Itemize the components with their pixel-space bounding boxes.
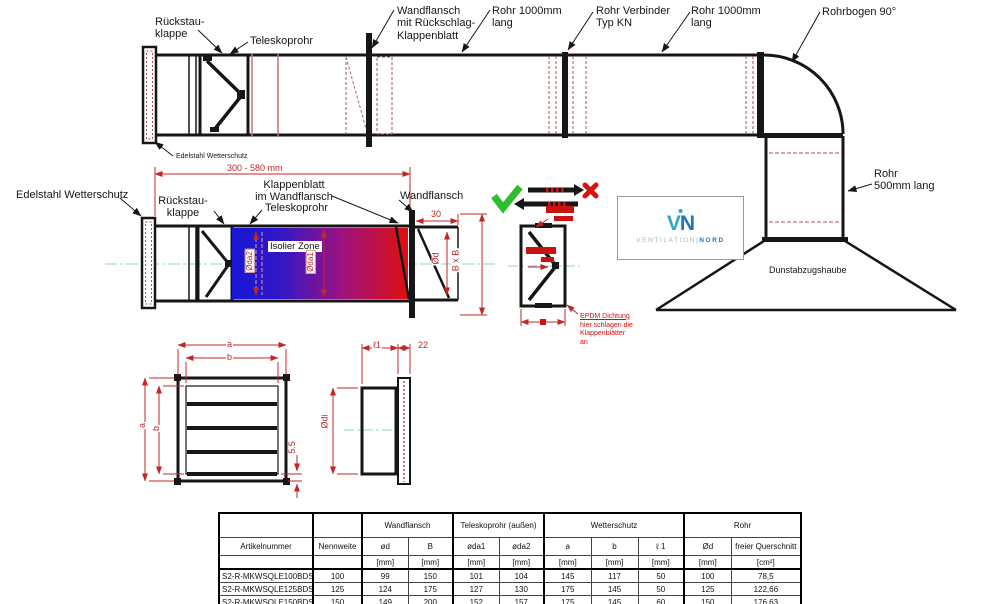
label-teleskoprohr-section: Teleskoprohr — [265, 202, 328, 214]
table-header: Nennweite — [313, 538, 362, 556]
table-cell: [cm²] — [731, 556, 801, 570]
table-cell: 145 — [591, 583, 638, 596]
label-wandflansch-section: Wandflansch — [400, 190, 463, 202]
table-cell: 175 — [408, 583, 453, 596]
dim-30: 30 — [430, 210, 442, 219]
logo-letter-n: N — [680, 212, 694, 235]
table-cell: 101 — [453, 569, 499, 583]
table-cell: [mm] — [638, 556, 684, 570]
table-group-rohr: Rohr — [684, 513, 801, 538]
table-cell: 100 — [313, 569, 362, 583]
table-header: øda1 — [453, 538, 499, 556]
table-cell: 200 — [408, 596, 453, 604]
dim-bxb: B x B — [451, 249, 460, 273]
table-cell: 117 — [591, 569, 638, 583]
spec-table: Wandflansch Teleskoprohr (außen) Wetters… — [218, 512, 802, 604]
logo-vn-monogram: VN — [667, 213, 694, 234]
ventilation-nord-logo: VN VENTILATION|NORD — [617, 196, 744, 260]
logo-wordmark: VENTILATION|NORD — [636, 237, 725, 244]
table-group-teleskoprohr: Teleskoprohr (außen) — [453, 513, 544, 538]
table-cell: 100 — [684, 569, 731, 583]
blocked-cross-icon — [585, 185, 596, 196]
table-header: Artikelnummer — [219, 538, 313, 556]
note-epdm-body: hier schlagen die Klappenblätter an — [580, 322, 633, 347]
label-rohr500: Rohr 500mm lang — [874, 168, 935, 193]
table-cell: 104 — [499, 569, 544, 583]
table-header: b — [591, 538, 638, 556]
dim-od: Ød — [432, 251, 441, 265]
label-rohrbogen: Rohrbogen 90° — [822, 6, 896, 18]
table-header: Ød — [684, 538, 731, 556]
label-edelstahl-top: Edelstahl Wetterschutz — [176, 153, 247, 161]
table-cell: 50 — [638, 569, 684, 583]
dim-odi: Ødi — [321, 413, 330, 429]
table-cell: 99 — [362, 569, 408, 583]
table-header: ød — [362, 538, 408, 556]
table-group-wandflansch: Wandflansch — [362, 513, 453, 538]
dim-a-left: a — [138, 422, 147, 429]
table-row: S2-R-MKWSQLE100BDSI 100 99 150 101 104 1… — [219, 569, 801, 583]
logo-word-nord: NORD — [699, 237, 725, 244]
table-group-wetterschutz: Wetterschutz — [544, 513, 684, 538]
technical-drawing-page: Rückstau- klappe Teleskoprohr Wandflansc… — [0, 0, 1000, 604]
table-cell: 125 — [684, 583, 731, 596]
table-cell: 176,63 — [731, 596, 801, 604]
table-cell-artikelnummer: S2-R-MKWSQLE125BDSI — [219, 583, 313, 596]
epdm-seal-marks — [526, 206, 574, 262]
table-cell — [313, 556, 362, 570]
isolier-zone-gradient — [232, 228, 408, 299]
label-rohr-verbinder: Rohr Verbinder Typ KN — [596, 5, 670, 30]
dim-22: 22 — [417, 341, 429, 350]
table-cell: 175 — [544, 583, 591, 596]
table-units-row: [mm] [mm] [mm] [mm] [mm] [mm] [mm] [mm] … — [219, 556, 801, 570]
wetterschutz-side-view — [333, 344, 410, 484]
table-header: ℓ 1 — [638, 538, 684, 556]
table-header: B — [408, 538, 453, 556]
table-cell: [mm] — [684, 556, 731, 570]
table-group-header-row: Wandflansch Teleskoprohr (außen) Wetters… — [219, 513, 801, 538]
table-cell: 152 — [453, 596, 499, 604]
label-klappenblatt: Klappenblatt im Wandflansch — [248, 179, 340, 204]
table-header: a — [544, 538, 591, 556]
table-cell: 124 — [362, 583, 408, 596]
flow-right-arrow — [528, 184, 584, 196]
table-cell — [219, 513, 313, 538]
table-cell — [313, 513, 362, 538]
valve-detail-drawing — [508, 206, 580, 326]
wetterschutz-front-view — [145, 345, 302, 498]
dim-b-top: b — [226, 353, 233, 362]
table-cell: 149 — [362, 596, 408, 604]
label-edelstahl-section: Edelstahl Wetterschutz — [16, 189, 128, 201]
logo-word-ventilation: VENTILATION — [636, 237, 696, 244]
table-cell: 150 — [684, 596, 731, 604]
table-cell: 145 — [544, 569, 591, 583]
dim-l1: ℓ1 — [372, 341, 382, 350]
table-header: freier Querschnitt — [731, 538, 801, 556]
label-rohr1000-a: Rohr 1000mm lang — [492, 5, 562, 30]
table-cell: [mm] — [408, 556, 453, 570]
airflow-direction-icons — [494, 184, 596, 210]
table-cell: 78,5 — [731, 569, 801, 583]
table-cell: 125 — [313, 583, 362, 596]
label-teleskoprohr-top: Teleskoprohr — [250, 35, 313, 47]
table-cell: 175 — [544, 596, 591, 604]
table-cell: 150 — [313, 596, 362, 604]
table-cell: [mm] — [453, 556, 499, 570]
dim-300-580: 300 - 580 mm — [226, 164, 284, 173]
label-rohr1000-b: Rohr 1000mm lang — [691, 5, 761, 30]
table-cell: 157 — [499, 596, 544, 604]
label-rueckstauklappe-section: Rückstau- klappe — [152, 195, 214, 220]
note-epdm-title: EPDM Dichtung — [580, 313, 630, 320]
table-cell-artikelnummer: S2-R-MKWSQLE100BDSI — [219, 569, 313, 583]
table-cell: 60 — [638, 596, 684, 604]
label-dunstabzugshaube: Dunstabzugshaube — [769, 265, 847, 275]
table-cell: 145 — [591, 596, 638, 604]
table-cell: [mm] — [544, 556, 591, 570]
table-cell: 50 — [638, 583, 684, 596]
table-cell: 150 — [408, 569, 453, 583]
logo-letter-v: V — [667, 212, 680, 235]
table-cell-artikelnummer: S2-R-MKWSQLE150BDSI — [219, 596, 313, 604]
table-header: øda2 — [499, 538, 544, 556]
table-cell — [219, 556, 313, 570]
table-cell: [mm] — [499, 556, 544, 570]
table-cell: [mm] — [362, 556, 408, 570]
logo-dot-icon — [678, 209, 682, 213]
table-row: S2-R-MKWSQLE125BDSI 125 124 175 127 130 … — [219, 583, 801, 596]
table-cell: 127 — [453, 583, 499, 596]
note-epdm: EPDM Dichtung hier schlagen die Klappenb… — [580, 304, 652, 348]
table-row: S2-R-MKWSQLE150BDSI 150 149 200 152 157 … — [219, 596, 801, 604]
dim-a-top: a — [226, 340, 233, 349]
dim-oda2: Øda2 — [245, 249, 255, 273]
dim-oda1: Øda1 — [306, 250, 316, 274]
label-wandflansch-klappenblatt: Wandflansch mit Rückschlag- Klappenblatt — [397, 5, 475, 42]
table-header-row: Artikelnummer Nennweite ød B øda1 øda2 a… — [219, 538, 801, 556]
table-cell: 130 — [499, 583, 544, 596]
table-cell: [mm] — [591, 556, 638, 570]
label-rueckstauklappe-top: Rückstau- klappe — [155, 16, 205, 41]
dim-5-5: 5.5 — [288, 440, 297, 455]
dim-b-left: b — [152, 425, 161, 432]
table-cell: 122,66 — [731, 583, 801, 596]
